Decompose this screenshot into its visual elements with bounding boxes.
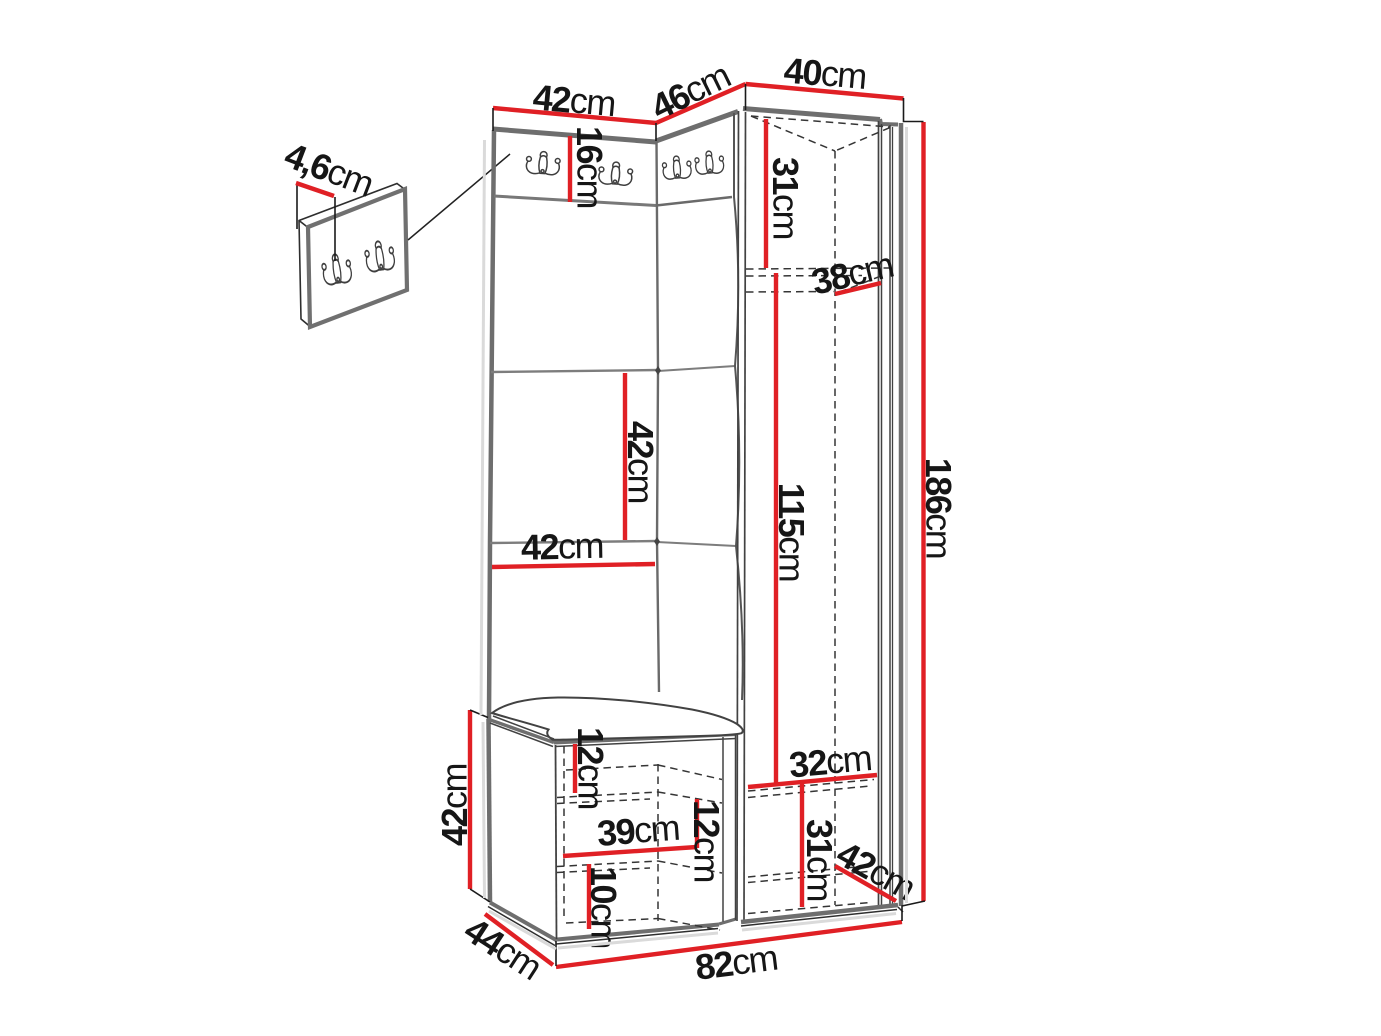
svg-text:32cm: 32cm [787,737,872,785]
svg-text:42cm: 42cm [434,764,475,846]
svg-text:12cm: 12cm [687,800,728,882]
svg-text:40cm: 40cm [782,49,867,97]
svg-text:39cm: 39cm [596,807,681,854]
svg-text:42cm: 42cm [621,421,662,503]
svg-text:42cm: 42cm [521,525,604,567]
svg-text:16cm: 16cm [570,126,611,208]
svg-text:12cm: 12cm [571,727,612,809]
svg-text:10cm: 10cm [584,866,625,948]
svg-text:31cm: 31cm [766,157,807,239]
svg-text:115cm: 115cm [772,483,813,582]
svg-text:42cm: 42cm [531,76,616,124]
svg-text:186cm: 186cm [919,458,960,559]
